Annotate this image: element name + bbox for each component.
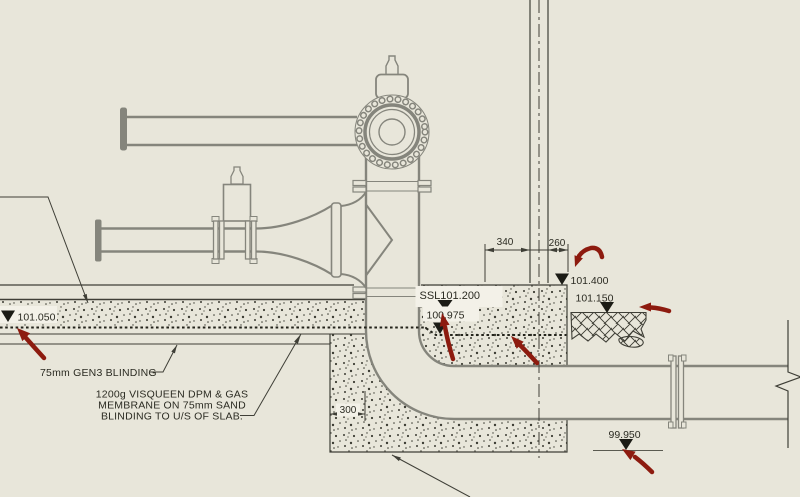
cad-drawing-canvas: 340 260 300 101.050 SSL101.200 100.975 1… xyxy=(0,0,800,497)
lower-flange-tab xyxy=(353,287,366,292)
level-101-050-text: 101.050 xyxy=(18,312,56,324)
upper-flange-tab xyxy=(353,187,366,192)
dim-260-text: 260 xyxy=(549,238,566,249)
upper-flange-tab xyxy=(418,187,431,192)
blank-flange xyxy=(95,220,102,262)
flange-bolt-nub xyxy=(669,422,674,428)
level-marker-101-050: 101.050 xyxy=(0,306,57,324)
upper-flange-tab xyxy=(353,181,366,186)
valve-bonnet xyxy=(224,185,251,222)
visqueen-note-line3: BLINDING TO U/S OF SLAB. xyxy=(101,411,243,423)
valve-flange-bar xyxy=(220,221,225,259)
level-101-400-text: 101.400 xyxy=(571,275,609,287)
blank-flange xyxy=(120,108,127,151)
large-flange xyxy=(332,203,342,277)
dim-300-text: 300 xyxy=(340,405,357,416)
flange-bar xyxy=(671,356,676,428)
flange-bar xyxy=(679,356,684,428)
valve-flange-bar xyxy=(252,221,257,259)
valve-flange-bar xyxy=(214,221,219,259)
lower-flange-tab xyxy=(353,294,366,299)
dim-340-text: 340 xyxy=(497,237,514,248)
cad-viewport: 340 260 300 101.050 SSL101.200 100.975 1… xyxy=(0,0,800,497)
flange-bolt-nub xyxy=(669,355,674,361)
flange-bolt-nub xyxy=(682,422,687,428)
flange-bolt-nub xyxy=(682,355,687,361)
gen3-note-text: 75mm GEN3 BLINDING xyxy=(40,367,157,379)
valve-flange-bar xyxy=(246,221,251,259)
upper-flange-tab xyxy=(418,181,431,186)
